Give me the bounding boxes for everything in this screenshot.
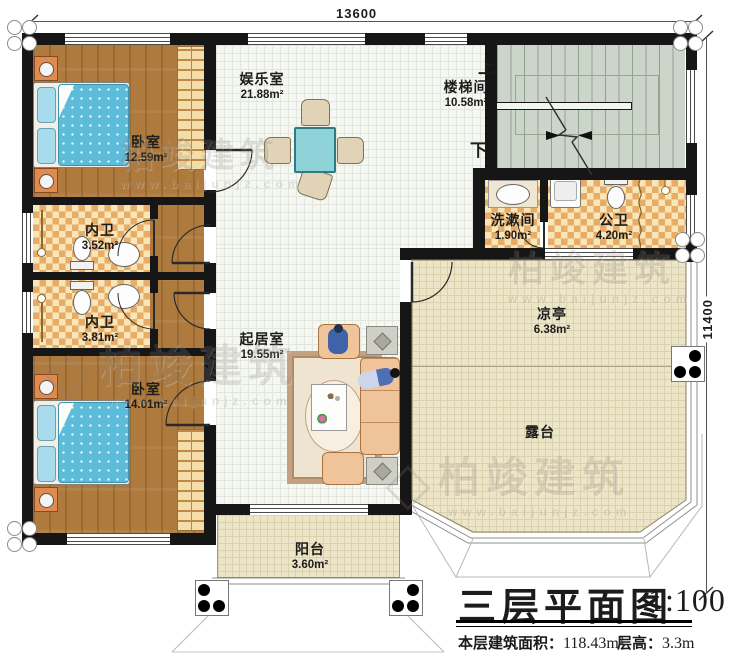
room-label-livingroom: 起居室 19.55m² [240, 330, 285, 363]
dimension-line-top [30, 21, 695, 22]
floor-height-info: 层高：3.3m [617, 632, 694, 653]
column-group [7, 521, 38, 554]
room-label-publicbath: 公卫 4.20m² [596, 211, 632, 244]
title-underline [456, 620, 692, 627]
plan-scale: 1:100 [648, 582, 726, 619]
room-label-recreation: 娱乐室 21.88m² [240, 70, 285, 103]
room-label-stairhall: 楼梯间 10.58m² [444, 78, 489, 111]
stair-down-label: 下 [470, 136, 487, 161]
room-label-innerbath2: 内卫 3.81m² [82, 313, 118, 346]
room-label-washroom: 洗漱间 1.90m² [491, 211, 536, 244]
dimension-top-value: 13600 [333, 6, 380, 21]
floor-plan: 13600 11400 卧室 12.59m² 内卫 3.52m² 内卫 3.81… [0, 0, 750, 658]
balcony-post [195, 580, 229, 616]
floor-area-value: 118.43m² [563, 635, 624, 652]
room-label-pavilion: 凉亭 6.38m² [534, 305, 570, 338]
room-label-bedroom1: 卧室 12.59m² [125, 133, 168, 166]
column-group [675, 232, 706, 265]
dimension-right-value: 11400 [700, 296, 715, 342]
room-label-bedroom2: 卧室 14.01m² [125, 380, 168, 413]
room-label-balcony: 阳台 3.60m² [292, 540, 328, 573]
floor-height-value: 3.3m [662, 635, 694, 652]
floor-height-label: 层高： [617, 635, 662, 652]
balcony-post [389, 580, 423, 616]
stair-up-label: 上 [478, 53, 495, 78]
room-label-terrace: 露台 [525, 423, 555, 441]
floor-area-info: 本层建筑面积：118.43m² [458, 632, 624, 653]
column-group [7, 20, 38, 53]
floor-area-label: 本层建筑面积： [458, 635, 563, 652]
room-label-innerbath1: 内卫 3.52m² [82, 221, 118, 254]
terrace-post [671, 346, 705, 382]
column-group [673, 20, 704, 53]
